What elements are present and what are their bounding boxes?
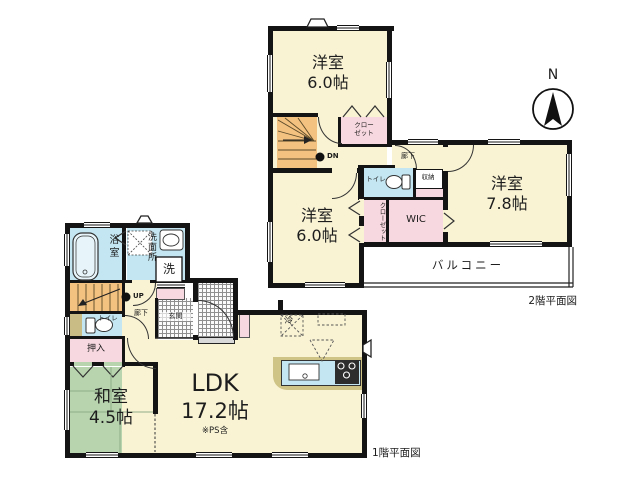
storage-label: 収納 [415,173,441,181]
floor1-title: 1階平面図 [372,447,438,460]
window [488,139,520,145]
room-size: 7.8帖 [467,194,547,214]
compass-needle [544,92,562,126]
kitchen-countertop [281,360,361,386]
wall [238,310,362,315]
hallway-2f-label: 廊下 [392,152,424,161]
door-opening [74,362,92,366]
window [196,452,232,458]
compass-n-label: N [545,67,561,85]
stairs-2f [277,117,317,168]
wall [70,336,122,339]
oshiire-label: 押入 [70,344,122,355]
window [84,222,110,228]
window [267,222,273,262]
laundry-label: 洗 [156,262,182,277]
window [337,25,359,31]
floor2-title: 2階平面図 [515,295,577,308]
genkan-label: 玄関 [160,312,191,321]
door-opening [341,113,387,117]
door-opening [104,362,122,366]
floorplan-canvas: 洋室 6.0帖 洋室 7.8帖 洋室 6.0帖 クロー ゼット クローゼット W… [0,0,635,480]
window [566,154,572,196]
room-name: 洋室 [277,206,357,226]
ldk-room-arm [238,315,362,340]
toilet-1f-counter [70,314,82,336]
hallway-1f-label: 廊下 [127,309,155,318]
wall [185,223,190,283]
room-label-ldk: LDK 17.2帖 ※PS含 [145,368,285,437]
wic-label: WIC [389,214,443,227]
room-size: 4.5帖 [69,408,153,429]
window [272,452,308,458]
stairs-up-label: UP [133,292,151,301]
wall [122,228,126,283]
room-label-washitsu: 和室 4.5帖 [69,387,153,430]
window [361,394,367,418]
stairs-dn-label: DN [327,152,345,161]
window [64,234,70,266]
washroom-label: 洗面所 [142,232,155,282]
bath-label: 浴室 [104,234,118,280]
closet-top-line1: クロー [341,121,387,129]
window [305,282,345,288]
compass-circle [533,89,573,129]
room-label-yoshitsu-right: 洋室 7.8帖 [467,174,547,214]
toilet-1f-label: トイレ [94,314,122,322]
room-name: LDK [145,368,285,398]
wall [278,300,283,315]
closet-top-line2: ゼット [341,129,387,137]
wall [233,278,238,340]
room-size: 6.0帖 [288,73,368,93]
window [267,55,273,92]
room-label-yoshitsu-left: 洋室 6.0帖 [277,206,357,246]
entry-step [198,337,235,344]
wall [362,310,367,458]
stairs-1f [70,283,122,311]
window [386,62,392,98]
closet-top-label: クロー ゼット [341,121,387,137]
wall [268,26,394,31]
wall [338,144,390,147]
wall [155,298,158,338]
fridge-label: 冷 [282,316,296,327]
room-size: 17.2帖 [145,398,285,424]
room-size: 6.0帖 [277,226,357,246]
window [408,139,438,145]
window [157,282,185,288]
room-label-yoshitsu-top: 洋室 6.0帖 [288,53,368,93]
room-name: 和室 [69,387,153,408]
room-name: 洋室 [288,53,368,73]
closet-side-label: クローゼット [362,202,385,241]
balcony-label: バルコニー [398,258,538,272]
wall [358,197,446,200]
toilet-2f-label: トイレ [361,175,391,183]
door-opening [443,210,448,232]
window [86,452,118,458]
shoe-cabinet [156,288,185,300]
window [64,317,70,335]
window [490,241,542,247]
room-name: 洋室 [467,174,547,194]
room-note: ※PS含 [145,426,285,437]
